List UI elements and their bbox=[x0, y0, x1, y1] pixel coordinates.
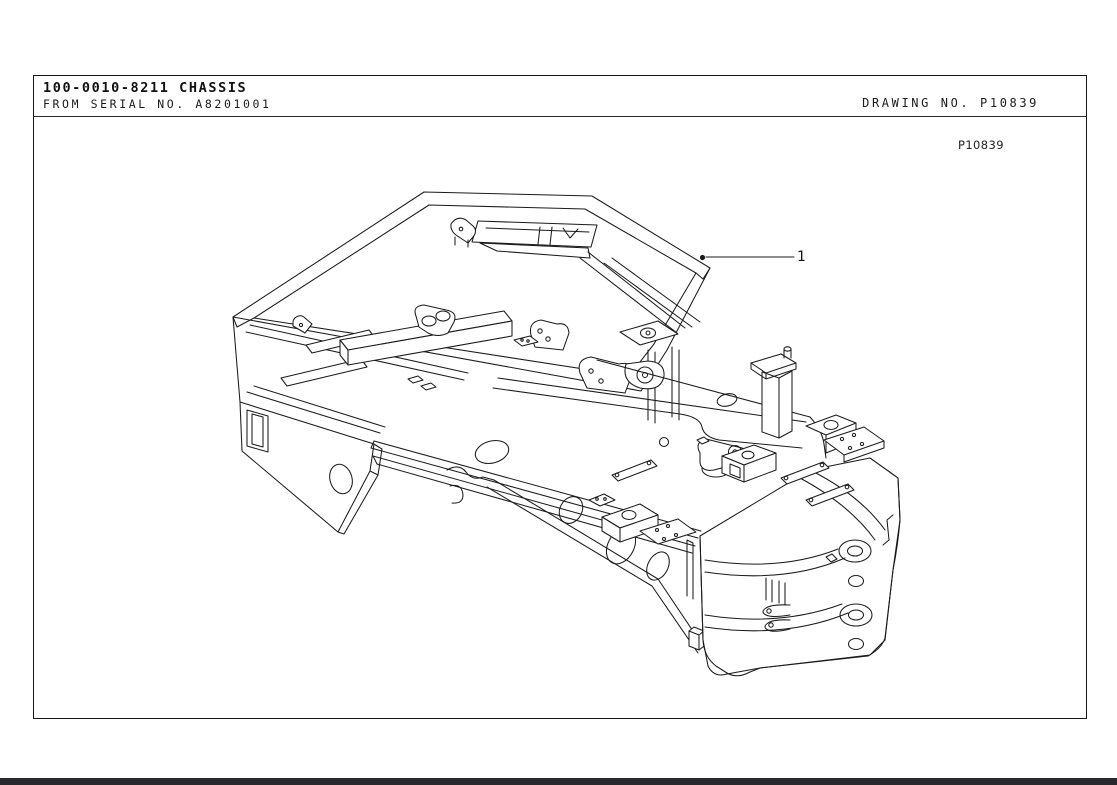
callout-number-1: 1 bbox=[797, 249, 806, 265]
title-block: 100-0010-8211 CHASSIS FROM SERIAL NO. A8… bbox=[43, 81, 272, 111]
drawing-sheet-border: 100-0010-8211 CHASSIS FROM SERIAL NO. A8… bbox=[33, 75, 1087, 719]
sheet-header: 100-0010-8211 CHASSIS FROM SERIAL NO. A8… bbox=[34, 76, 1086, 117]
drawing-reference-code: P10839 bbox=[958, 138, 1004, 152]
serial-note: FROM SERIAL NO. A8201001 bbox=[43, 98, 272, 111]
catalog-page: 100-0010-8211 CHASSIS FROM SERIAL NO. A8… bbox=[0, 0, 1117, 785]
footer-bar bbox=[0, 778, 1117, 785]
part-number-title: 100-0010-8211 CHASSIS bbox=[43, 81, 272, 97]
drawing-number: DRAWING NO. P10839 bbox=[862, 96, 1039, 110]
